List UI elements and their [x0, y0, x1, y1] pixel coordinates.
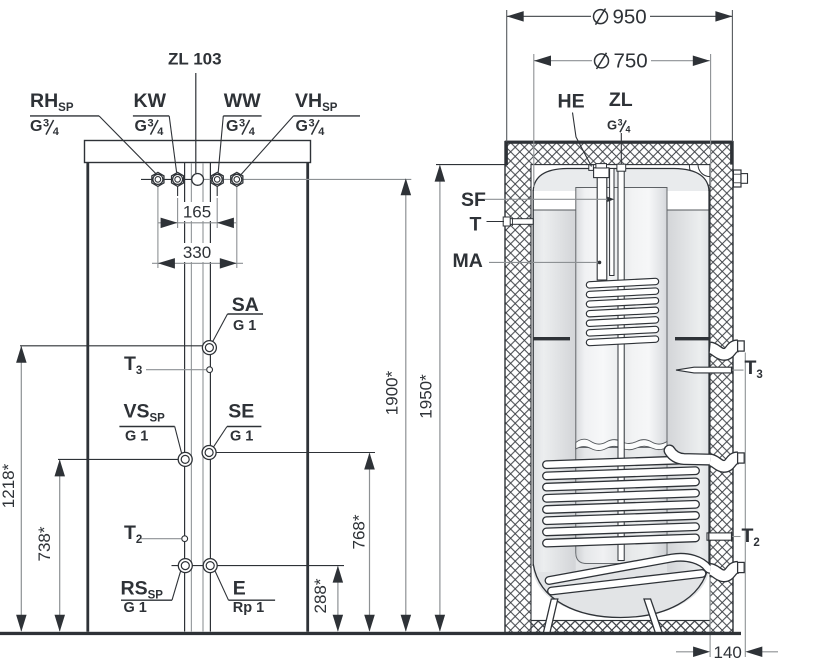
svg-text:SA: SA [232, 294, 259, 316]
svg-text:Rp 1: Rp 1 [233, 600, 264, 616]
svg-text:3: 3 [148, 117, 154, 129]
svg-text:G: G [135, 118, 147, 135]
svg-text:3: 3 [309, 117, 315, 129]
svg-text:G 1: G 1 [233, 318, 256, 334]
svg-text:750: 750 [614, 50, 648, 73]
svg-text:T: T [470, 214, 482, 236]
svg-text:3: 3 [43, 117, 49, 129]
svg-text:288*: 288* [311, 578, 330, 613]
svg-text:140: 140 [714, 643, 742, 662]
svg-text:G: G [607, 117, 617, 132]
svg-text:WW: WW [224, 90, 261, 112]
svg-text:1218*: 1218* [0, 463, 18, 508]
svg-text:950: 950 [613, 5, 647, 28]
svg-text:G: G [30, 118, 42, 135]
svg-text:ZL: ZL [609, 89, 633, 111]
svg-text:3: 3 [618, 118, 623, 128]
svg-text:E: E [233, 578, 246, 600]
svg-text:4: 4 [626, 124, 631, 134]
svg-text:4: 4 [318, 126, 325, 138]
svg-text:MA: MA [453, 250, 483, 272]
svg-text:330: 330 [183, 243, 211, 262]
svg-text:G: G [226, 118, 238, 135]
svg-text:1950*: 1950* [417, 374, 436, 419]
svg-text:SF: SF [461, 189, 486, 211]
svg-text:G 1: G 1 [124, 600, 147, 616]
svg-text:SE: SE [228, 400, 254, 422]
svg-text:1900*: 1900* [383, 370, 402, 415]
svg-text:G 1: G 1 [125, 429, 148, 445]
svg-text:165: 165 [183, 203, 211, 222]
svg-text:4: 4 [53, 126, 60, 138]
svg-text:KW: KW [134, 90, 167, 112]
svg-text:738*: 738* [35, 526, 54, 561]
svg-text:768*: 768* [350, 514, 369, 549]
svg-text:3: 3 [239, 117, 245, 129]
svg-text:4: 4 [249, 126, 256, 138]
svg-text:HE: HE [558, 91, 585, 113]
svg-text:4: 4 [157, 126, 164, 138]
svg-text:ZL 103: ZL 103 [168, 50, 222, 69]
svg-text:G: G [296, 118, 308, 135]
svg-text:G 1: G 1 [230, 429, 253, 445]
